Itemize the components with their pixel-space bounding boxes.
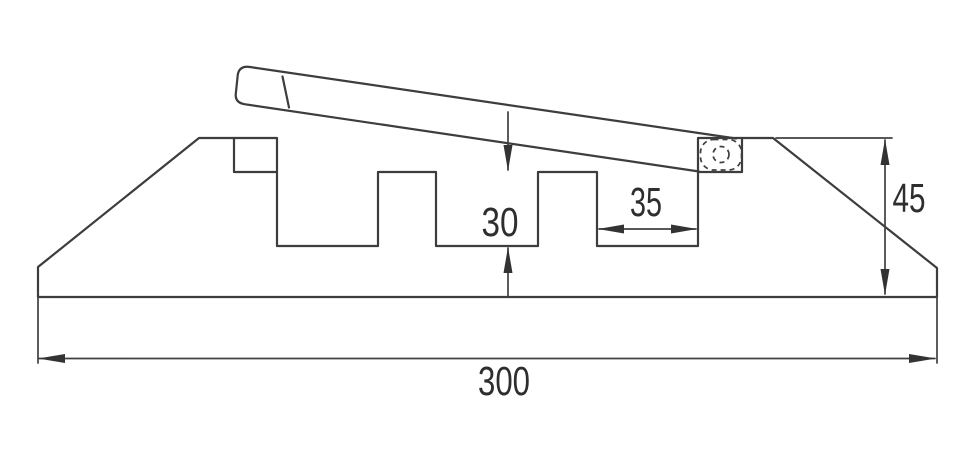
lid-rebate-notch: [234, 138, 277, 172]
arrowhead-45-up: [881, 139, 890, 165]
lid-end-edge-line: [283, 77, 290, 108]
dimension-end-height: 45: [776, 138, 926, 295]
cross-section-drawing: 30 35 45 300: [0, 0, 978, 476]
dimension-overall-width: 300: [38, 297, 937, 404]
arrowhead-300-left: [38, 354, 65, 363]
arrowhead-300-right: [909, 354, 936, 363]
hinge-pin-dashed-circle: [713, 147, 729, 163]
arrowhead-30-up: [504, 247, 513, 273]
dimension-label-35: 35: [630, 179, 662, 225]
lid-closed-dashed-outline: [701, 140, 742, 171]
dimension-label-300: 300: [478, 358, 530, 404]
arrowhead-30-down: [504, 145, 513, 171]
lid-open: [236, 67, 736, 172]
dimension-label-45: 45: [893, 175, 926, 221]
technical-drawing-canvas: 30 35 45 300: [0, 0, 978, 476]
arrowhead-45-down: [881, 269, 890, 295]
arrowhead-35-left: [598, 225, 624, 234]
dimension-channel-width: 35: [598, 179, 697, 234]
arrowhead-35-right: [671, 225, 697, 234]
dimension-label-30: 30: [482, 199, 519, 245]
